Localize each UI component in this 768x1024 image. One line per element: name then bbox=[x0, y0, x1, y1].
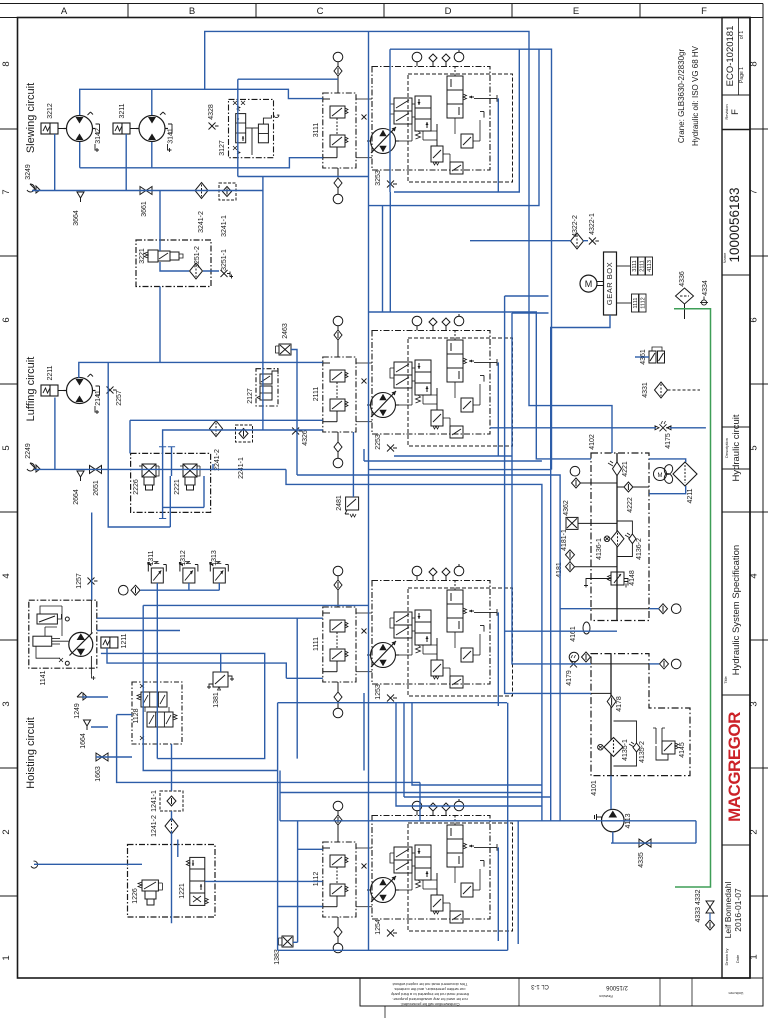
svg-text:1241-2: 1241-2 bbox=[151, 815, 158, 837]
svg-text:2253: 2253 bbox=[375, 434, 382, 450]
svg-text:3661: 3661 bbox=[141, 201, 148, 217]
svg-text:2481: 2481 bbox=[336, 495, 343, 511]
svg-text:7: 7 bbox=[1, 189, 12, 194]
svg-text:1141: 1141 bbox=[40, 670, 47, 685]
svg-text:1000056183: 1000056183 bbox=[727, 187, 742, 262]
svg-text:3142: 3142 bbox=[95, 128, 102, 144]
svg-text:This document must not be copi: This document must not be copied without bbox=[392, 982, 468, 987]
svg-text:2241-2: 2241-2 bbox=[214, 449, 221, 471]
svg-text:3212: 3212 bbox=[47, 103, 54, 119]
svg-text:Page 1: Page 1 bbox=[739, 67, 745, 83]
svg-text:Units mm: Units mm bbox=[729, 991, 744, 995]
svg-text:1: 1 bbox=[1, 955, 12, 960]
svg-text:4221: 4221 bbox=[622, 461, 629, 477]
svg-text:D: D bbox=[445, 6, 452, 17]
svg-text:ECO-1020181: ECO-1020181 bbox=[725, 26, 736, 87]
svg-text:4333 4332: 4333 4332 bbox=[695, 889, 702, 922]
svg-text:Title: Title bbox=[723, 676, 728, 684]
svg-text:4136-2: 4136-2 bbox=[636, 538, 643, 560]
svg-text:1221: 1221 bbox=[179, 883, 186, 899]
svg-text:1112: 1112 bbox=[641, 297, 647, 308]
svg-text:thereof must not be imparted t: thereof must not be imparted to a third … bbox=[391, 992, 469, 997]
svg-text:M: M bbox=[585, 279, 593, 289]
svg-text:1249: 1249 bbox=[74, 703, 81, 719]
svg-text:A: A bbox=[61, 6, 68, 17]
svg-text:3241-2: 3241-2 bbox=[198, 211, 205, 233]
svg-text:1253: 1253 bbox=[375, 684, 382, 700]
svg-text:2221: 2221 bbox=[174, 479, 181, 495]
svg-text:4181-1: 4181-1 bbox=[561, 529, 568, 551]
svg-text:1111: 1111 bbox=[313, 637, 320, 651]
svg-text:1254: 1254 bbox=[375, 919, 382, 935]
svg-text:1241-1: 1241-1 bbox=[151, 790, 158, 812]
svg-text:4: 4 bbox=[1, 573, 12, 578]
svg-text:4336: 4336 bbox=[679, 271, 686, 287]
svg-text:4331: 4331 bbox=[642, 382, 649, 398]
svg-text:1664: 1664 bbox=[80, 733, 87, 749]
svg-text:4322-1: 4322-1 bbox=[589, 213, 596, 235]
svg-text:GEAR BOX: GEAR BOX bbox=[605, 262, 614, 305]
svg-text:1313: 1313 bbox=[211, 550, 218, 566]
svg-text:1312: 1312 bbox=[180, 550, 187, 566]
svg-text:Revision: Revision bbox=[724, 104, 729, 119]
svg-text:3127: 3127 bbox=[219, 140, 226, 156]
svg-text:4179: 4179 bbox=[566, 670, 573, 686]
svg-text:2257: 2257 bbox=[116, 390, 123, 406]
svg-text:Hydraulic oil: ISO VG 68 HV: Hydraulic oil: ISO VG 68 HV bbox=[691, 45, 700, 146]
svg-text:1311: 1311 bbox=[148, 550, 155, 565]
svg-text:4135-2: 4135-2 bbox=[639, 741, 646, 763]
svg-text:5: 5 bbox=[1, 445, 12, 450]
svg-text:1226: 1226 bbox=[132, 888, 139, 904]
svg-text:4101: 4101 bbox=[591, 780, 598, 796]
svg-text:Description: Description bbox=[724, 438, 729, 458]
svg-text:4334: 4334 bbox=[702, 280, 709, 296]
svg-text:3251-1: 3251-1 bbox=[221, 249, 228, 271]
svg-text:1381: 1381 bbox=[213, 692, 220, 708]
svg-text:3241-1: 3241-1 bbox=[221, 215, 228, 237]
svg-text:2211: 2211 bbox=[47, 365, 54, 380]
svg-text:Drawn by: Drawn by bbox=[724, 949, 729, 966]
svg-text:C: C bbox=[317, 6, 324, 17]
svg-text:3111: 3111 bbox=[632, 260, 638, 271]
svg-text:F: F bbox=[701, 6, 707, 17]
svg-text:3251-2: 3251-2 bbox=[194, 246, 201, 268]
svg-text:1257: 1257 bbox=[76, 573, 83, 589]
svg-text:3111: 3111 bbox=[313, 123, 320, 138]
svg-text:6: 6 bbox=[1, 317, 12, 322]
svg-text:2111: 2111 bbox=[313, 387, 320, 402]
svg-text:2664: 2664 bbox=[73, 489, 80, 505]
svg-text:2016-01-07: 2016-01-07 bbox=[733, 888, 743, 932]
svg-text:3211: 3211 bbox=[119, 103, 126, 118]
svg-text:4135-1: 4135-1 bbox=[622, 739, 629, 761]
svg-text:8: 8 bbox=[1, 61, 12, 66]
svg-text:2: 2 bbox=[1, 829, 12, 834]
svg-text:1112: 1112 bbox=[313, 872, 320, 887]
svg-text:4102: 4102 bbox=[589, 434, 596, 450]
svg-text:M: M bbox=[658, 473, 663, 479]
svg-text:F: F bbox=[730, 109, 741, 115]
svg-text:Slewing circuit: Slewing circuit bbox=[25, 83, 37, 153]
svg-text:4322-2: 4322-2 bbox=[572, 215, 579, 237]
svg-text:3253: 3253 bbox=[375, 170, 382, 186]
svg-text:MACGREGOR: MACGREGOR bbox=[725, 712, 744, 822]
svg-text:Hoisting circuit: Hoisting circuit bbox=[25, 717, 37, 789]
svg-text:1211: 1211 bbox=[121, 633, 128, 648]
svg-text:E: E bbox=[573, 6, 579, 17]
svg-text:4222: 4222 bbox=[627, 497, 634, 513]
svg-text:4326: 4326 bbox=[302, 430, 309, 446]
svg-text:4362: 4362 bbox=[563, 500, 570, 516]
svg-text:of 1: of 1 bbox=[739, 31, 745, 40]
svg-text:3221: 3221 bbox=[139, 248, 146, 264]
svg-text:4211: 4211 bbox=[687, 488, 694, 503]
svg-text:2651: 2651 bbox=[93, 480, 100, 496]
svg-text:4113: 4113 bbox=[647, 260, 653, 272]
svg-text:2/15006: 2/15006 bbox=[606, 984, 628, 990]
svg-text:4148: 4148 bbox=[629, 570, 636, 586]
svg-text:B: B bbox=[189, 6, 195, 17]
svg-text:1128: 1128 bbox=[133, 708, 140, 723]
svg-text:2127: 2127 bbox=[247, 388, 254, 404]
svg-text:4335: 4335 bbox=[638, 852, 645, 868]
svg-text:4328: 4328 bbox=[208, 104, 215, 120]
svg-text:2241-1: 2241-1 bbox=[238, 457, 245, 479]
svg-text:3141: 3141 bbox=[168, 128, 175, 144]
svg-text:Hydraulic System Specification: Hydraulic System Specification bbox=[731, 545, 742, 675]
svg-text:Hydraulic circuit: Hydraulic circuit bbox=[731, 414, 742, 481]
svg-text:2249: 2249 bbox=[25, 443, 32, 459]
svg-text:4175: 4175 bbox=[665, 433, 672, 449]
svg-text:our written permission, and th: our written permission, and the contents bbox=[395, 987, 466, 992]
svg-text:Contravention will be prosecut: Contravention will be prosecuted. bbox=[400, 1002, 459, 1007]
svg-text:CL 1-3: CL 1-3 bbox=[530, 983, 548, 989]
svg-text:4161: 4161 bbox=[570, 626, 577, 642]
svg-text:Leif Bonnedahl: Leif Bonnedahl bbox=[723, 882, 733, 939]
svg-text:Revision: Revision bbox=[599, 994, 612, 998]
svg-text:1111: 1111 bbox=[633, 297, 639, 308]
svg-text:3249: 3249 bbox=[25, 164, 32, 180]
svg-text:2226: 2226 bbox=[133, 479, 140, 495]
svg-text:3: 3 bbox=[1, 701, 12, 706]
svg-text:1383: 1383 bbox=[274, 949, 281, 965]
svg-text:nor be used for any unauthoriz: nor be used for any unauthorized purpose… bbox=[392, 997, 467, 1002]
svg-text:4136-1: 4136-1 bbox=[596, 538, 603, 560]
svg-text:2111: 2111 bbox=[640, 260, 646, 271]
svg-text:Date: Date bbox=[735, 954, 740, 963]
svg-text:Crane: GLB3630-2/2830gr: Crane: GLB3630-2/2830gr bbox=[677, 49, 686, 144]
svg-text:2463: 2463 bbox=[282, 323, 289, 339]
svg-text:1663: 1663 bbox=[95, 766, 102, 782]
svg-text:2141: 2141 bbox=[95, 390, 102, 406]
svg-text:4145: 4145 bbox=[679, 742, 686, 758]
svg-text:3664: 3664 bbox=[73, 210, 80, 226]
svg-text:4178: 4178 bbox=[616, 696, 623, 712]
svg-text:Luffing circuit: Luffing circuit bbox=[25, 357, 37, 422]
